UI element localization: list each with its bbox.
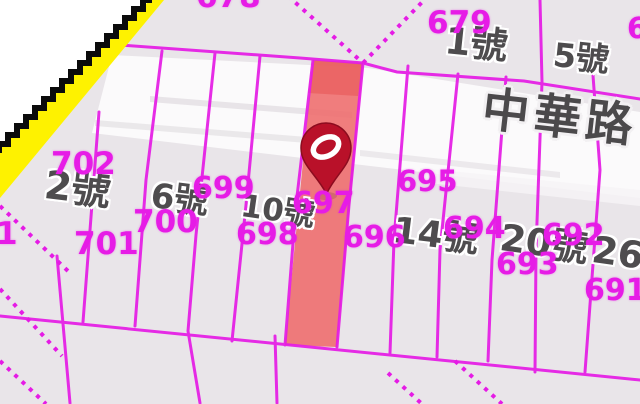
parcel-label-693: 693	[496, 250, 559, 280]
address-label-5: 5號	[552, 38, 611, 77]
parcel-label-1: 1	[0, 219, 18, 250]
parcel-label-696: 696	[343, 223, 406, 253]
parcel-label-692: 692	[542, 221, 605, 251]
cadastral-map-viewport[interactable]: 中華路 1號 5號 2號 6號 10號 14號 20號 26號 678 679 …	[0, 0, 640, 404]
parcel-label-691: 691	[584, 276, 640, 306]
parcel-label-700: 700	[133, 207, 198, 238]
parcel-label-679: 679	[427, 8, 492, 39]
parcel-label-697: 697	[292, 189, 355, 219]
parcel-label-699: 699	[192, 174, 255, 204]
parcel-label-702: 702	[51, 149, 116, 180]
parcel-label-695: 695	[397, 167, 458, 196]
parcel-label-701: 701	[74, 229, 139, 260]
parcel-label-694: 694	[443, 214, 506, 244]
parcel-label-678: 678	[196, 0, 261, 13]
parcel-label-698: 698	[236, 220, 299, 250]
parcel-label-partial-6: 6	[627, 14, 640, 43]
